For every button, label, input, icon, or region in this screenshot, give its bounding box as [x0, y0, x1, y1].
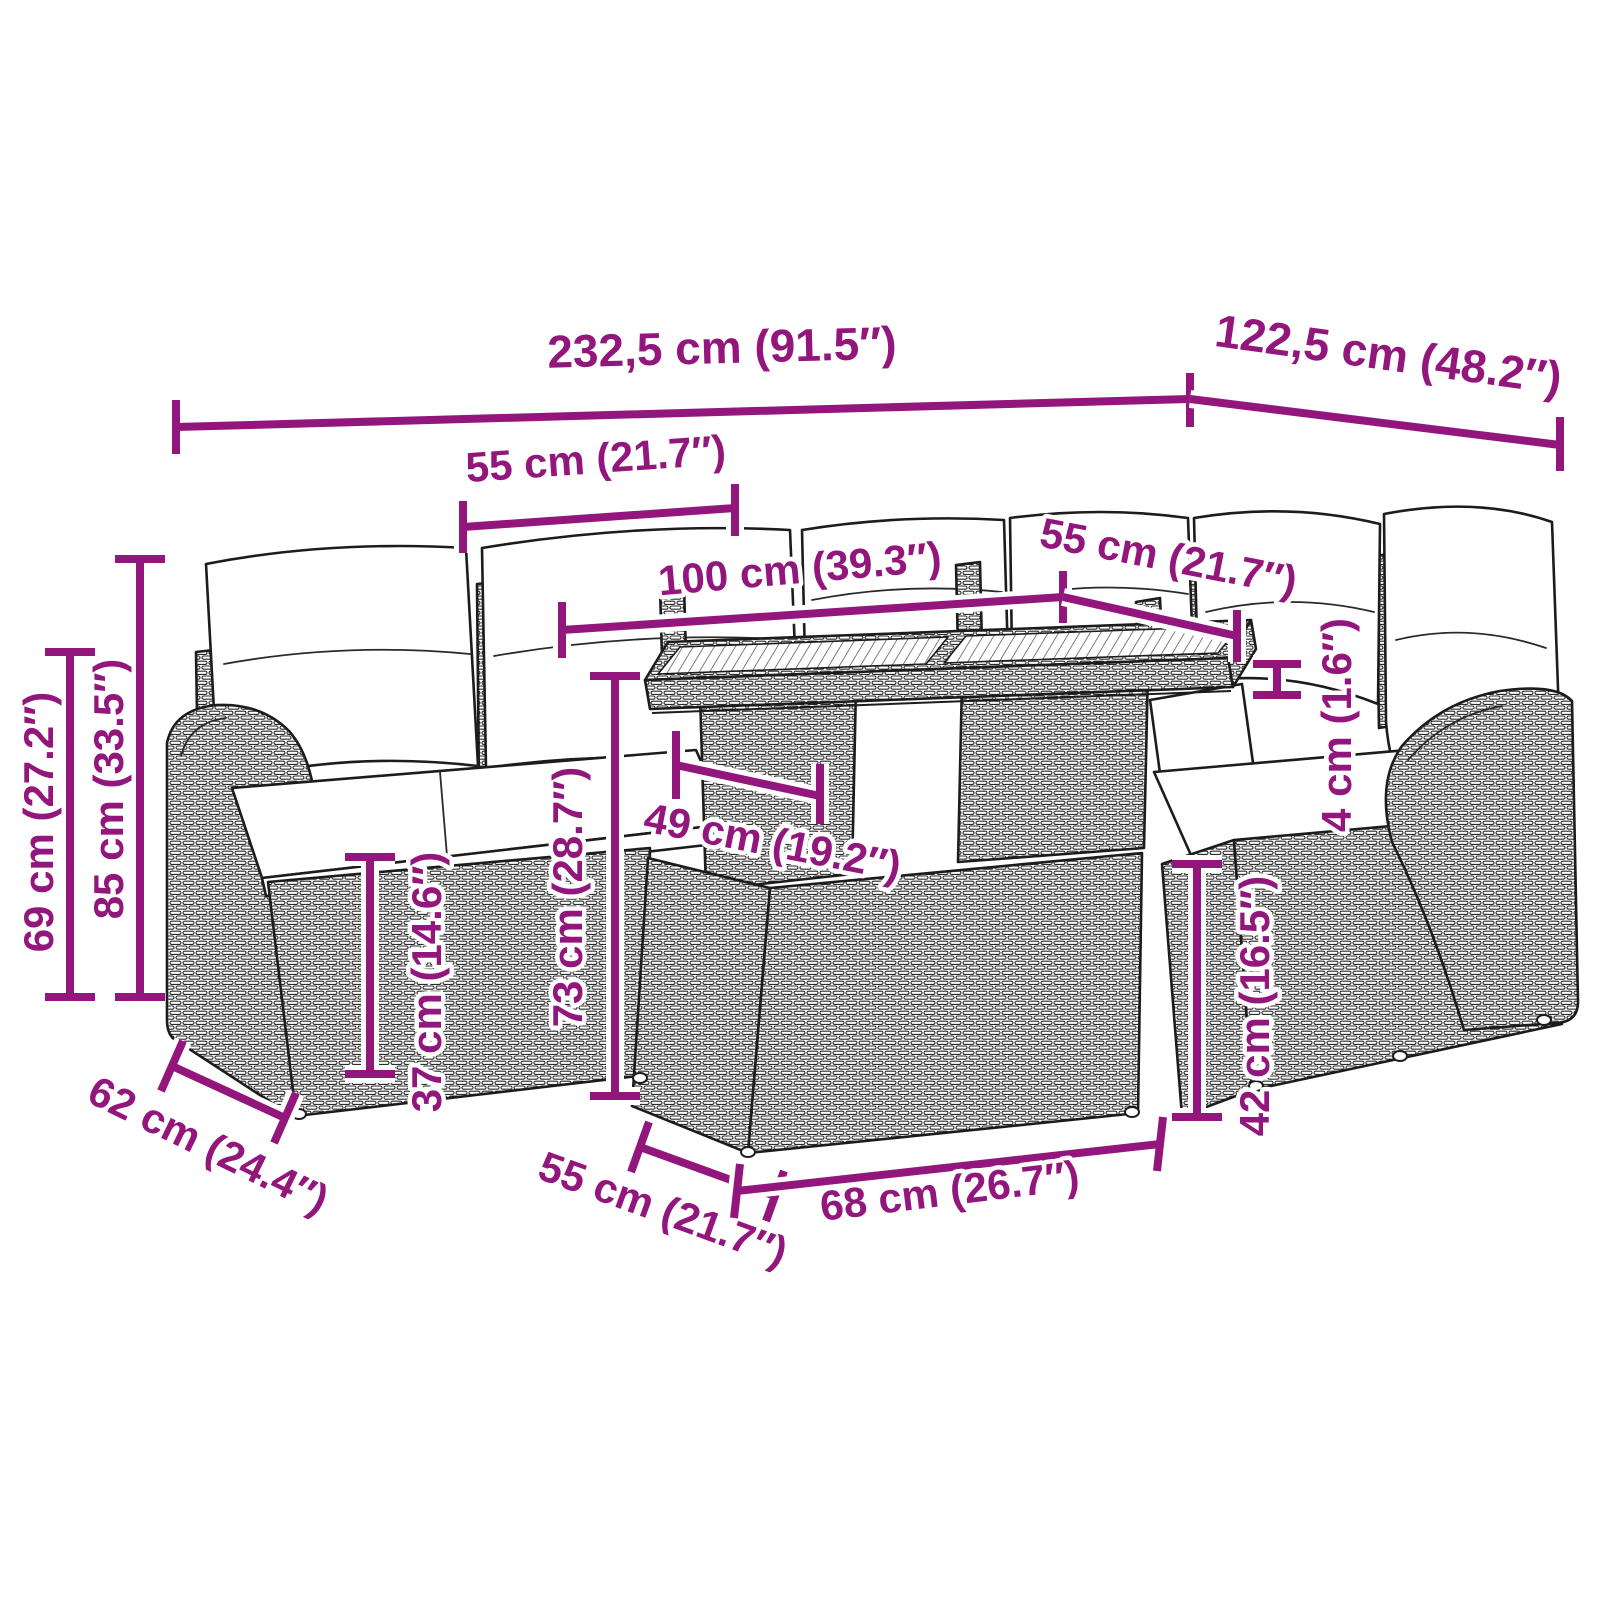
label-sofa-height: 85 cm (33.5″) [85, 659, 132, 920]
dimension-sofa-height: 85 cm (33.5″) [85, 559, 165, 997]
label-tabletop-thickness: 4 cm (1.6″) [1313, 618, 1360, 832]
label-total-depth: 122,5 cm (48.2″) [1212, 304, 1565, 404]
label-table-height: 73 cm (28.7″) [544, 767, 591, 1028]
dimension-backrest-height: 69 cm (27.2″) [15, 652, 95, 997]
dimension-total-depth: 122,5 cm (48.2″) [1190, 304, 1565, 471]
dimension-line [1190, 399, 1560, 471]
furniture-foot [1125, 1107, 1139, 1117]
stool-side [632, 858, 770, 1153]
stool-front [748, 853, 1142, 1153]
furniture-foot [741, 1147, 755, 1157]
label-total-width: 232,5 cm (91.5″) [547, 317, 898, 378]
label-stool-height: 42 cm (16.5″) [1231, 876, 1278, 1137]
furniture-foot [633, 1073, 647, 1083]
label-backrest-height: 69 cm (27.2″) [15, 692, 62, 953]
sofa-base [268, 848, 650, 1116]
furniture-foot [1537, 1015, 1551, 1025]
label-left-seat-width: 55 cm (21.7″) [464, 426, 727, 491]
furniture-foot [1393, 1051, 1407, 1061]
dimension-diagram: 232,5 cm (91.5″) 122,5 cm (48.2″) 55 cm … [0, 0, 1600, 1600]
label-seat-height: 37 cm (14.6″) [403, 852, 450, 1113]
diagram-canvas: 232,5 cm (91.5″) 122,5 cm (48.2″) 55 cm … [0, 0, 1600, 1600]
